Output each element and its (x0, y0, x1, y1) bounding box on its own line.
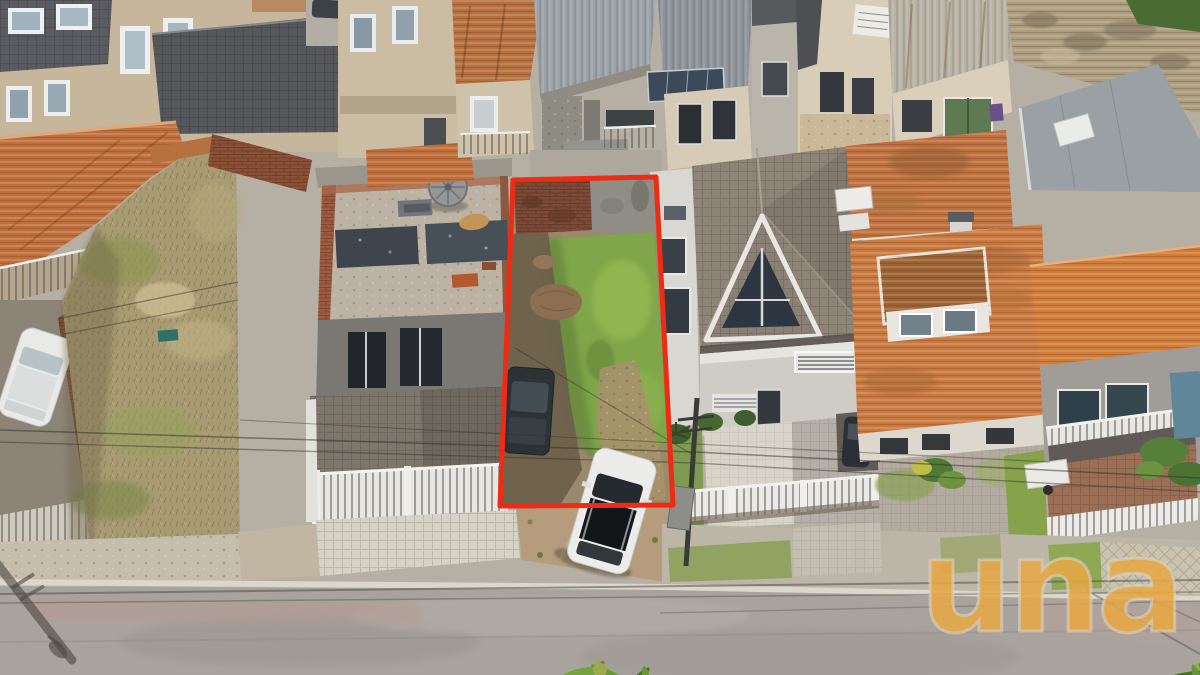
lot-concrete-wall (590, 178, 660, 240)
small-sign (158, 329, 179, 342)
dormer-window (944, 310, 976, 332)
dormer-window (900, 314, 932, 336)
bricks-pile (452, 273, 479, 288)
construction-building (306, 158, 520, 524)
covered-car (502, 366, 555, 455)
blue-wall-section (1170, 371, 1200, 439)
formwork-panel (335, 226, 419, 268)
water-heater (835, 186, 873, 212)
watermark-logo: una (920, 521, 1181, 651)
top-left-houses (0, 0, 381, 152)
aerial-photo: una (0, 0, 1200, 675)
vacant-lot (500, 177, 673, 506)
dirt-mound (530, 284, 582, 320)
